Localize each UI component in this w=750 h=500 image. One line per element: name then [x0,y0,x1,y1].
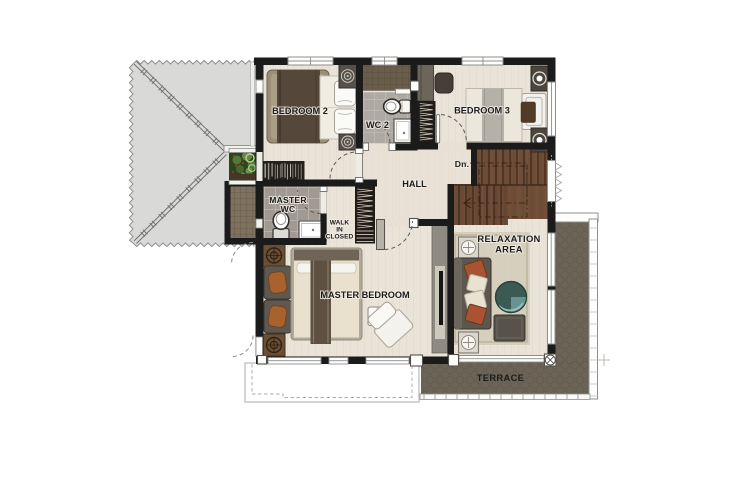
svg-text:HALL: HALL [402,179,427,189]
svg-text:Dn.: Dn. [455,159,469,169]
svg-text:WC 2: WC 2 [366,120,389,130]
svg-text:RELAXATION: RELAXATION [477,233,540,244]
svg-text:CLOSED: CLOSED [326,234,354,241]
svg-text:AREA: AREA [495,244,523,255]
svg-text:BEDROOM 2: BEDROOM 2 [272,106,328,116]
svg-text:MASTER BEDROOM: MASTER BEDROOM [320,290,410,300]
svg-text:BEDROOM 3: BEDROOM 3 [454,106,510,116]
svg-text:TERRACE: TERRACE [477,372,524,383]
svg-text:WALK: WALK [330,220,350,227]
svg-text:IN: IN [336,227,343,234]
svg-text:WC: WC [281,204,296,214]
